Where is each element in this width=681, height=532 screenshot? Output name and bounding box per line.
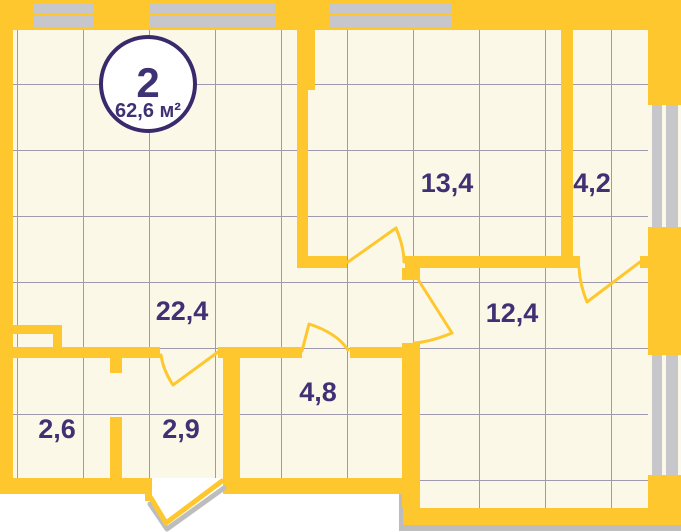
window-symbol-right-1 bbox=[648, 105, 681, 227]
wall-hall-bottom-right bbox=[350, 347, 410, 358]
room-area-label-13-4: 13,4 bbox=[421, 168, 474, 198]
wall-room13-room4-2 bbox=[561, 30, 573, 256]
exterior-shadow-bottom bbox=[402, 525, 681, 531]
duct-niche-top bbox=[13, 325, 62, 334]
wall-wc-bath-top bbox=[110, 358, 122, 373]
floor-plan: 2 62,6 м² 13,4 4,2 22,4 12,4 4,8 2,6 2,9 bbox=[0, 0, 681, 532]
wall-room12-top-stub bbox=[402, 268, 420, 280]
wall-bottom-left bbox=[0, 478, 148, 494]
wall-hall-room13-top bbox=[297, 30, 315, 90]
wall-room4-2-foot bbox=[555, 256, 580, 268]
floor-plan-canvas: 2 62,6 м² 13,4 4,2 22,4 12,4 4,8 2,6 2,9 bbox=[0, 0, 681, 532]
wall-bath-room4-8 bbox=[223, 358, 240, 478]
room-area-label-22-4: 22,4 bbox=[156, 296, 209, 326]
wall-bottom-right bbox=[402, 508, 681, 525]
wall-hall-bottom-left bbox=[13, 347, 160, 358]
wall-bottom-center bbox=[223, 478, 410, 494]
unit-number: 2 bbox=[136, 59, 159, 106]
wall-room12-left bbox=[402, 343, 420, 508]
wall-corridor-top-right bbox=[405, 256, 580, 268]
room-area-label-2-6: 2,6 bbox=[38, 414, 76, 444]
window-symbol-right-2 bbox=[648, 355, 681, 475]
wall-wc-bath-bottom bbox=[110, 417, 122, 478]
unit-area: 62,6 м² bbox=[115, 100, 181, 122]
wall-corridor-top-left bbox=[297, 256, 347, 268]
room-area-label-4-8: 4,8 bbox=[299, 377, 337, 407]
unit-badge: 2 62,6 м² bbox=[101, 37, 195, 131]
wall-left bbox=[0, 0, 13, 494]
room-area-label-2-9: 2,9 bbox=[162, 414, 200, 444]
room-area-label-4-2: 4,2 bbox=[573, 168, 611, 198]
wall-hall-bottom-center bbox=[218, 347, 302, 358]
room-area-label-12-4: 12,4 bbox=[486, 298, 539, 328]
duct-niche-side bbox=[53, 334, 62, 347]
